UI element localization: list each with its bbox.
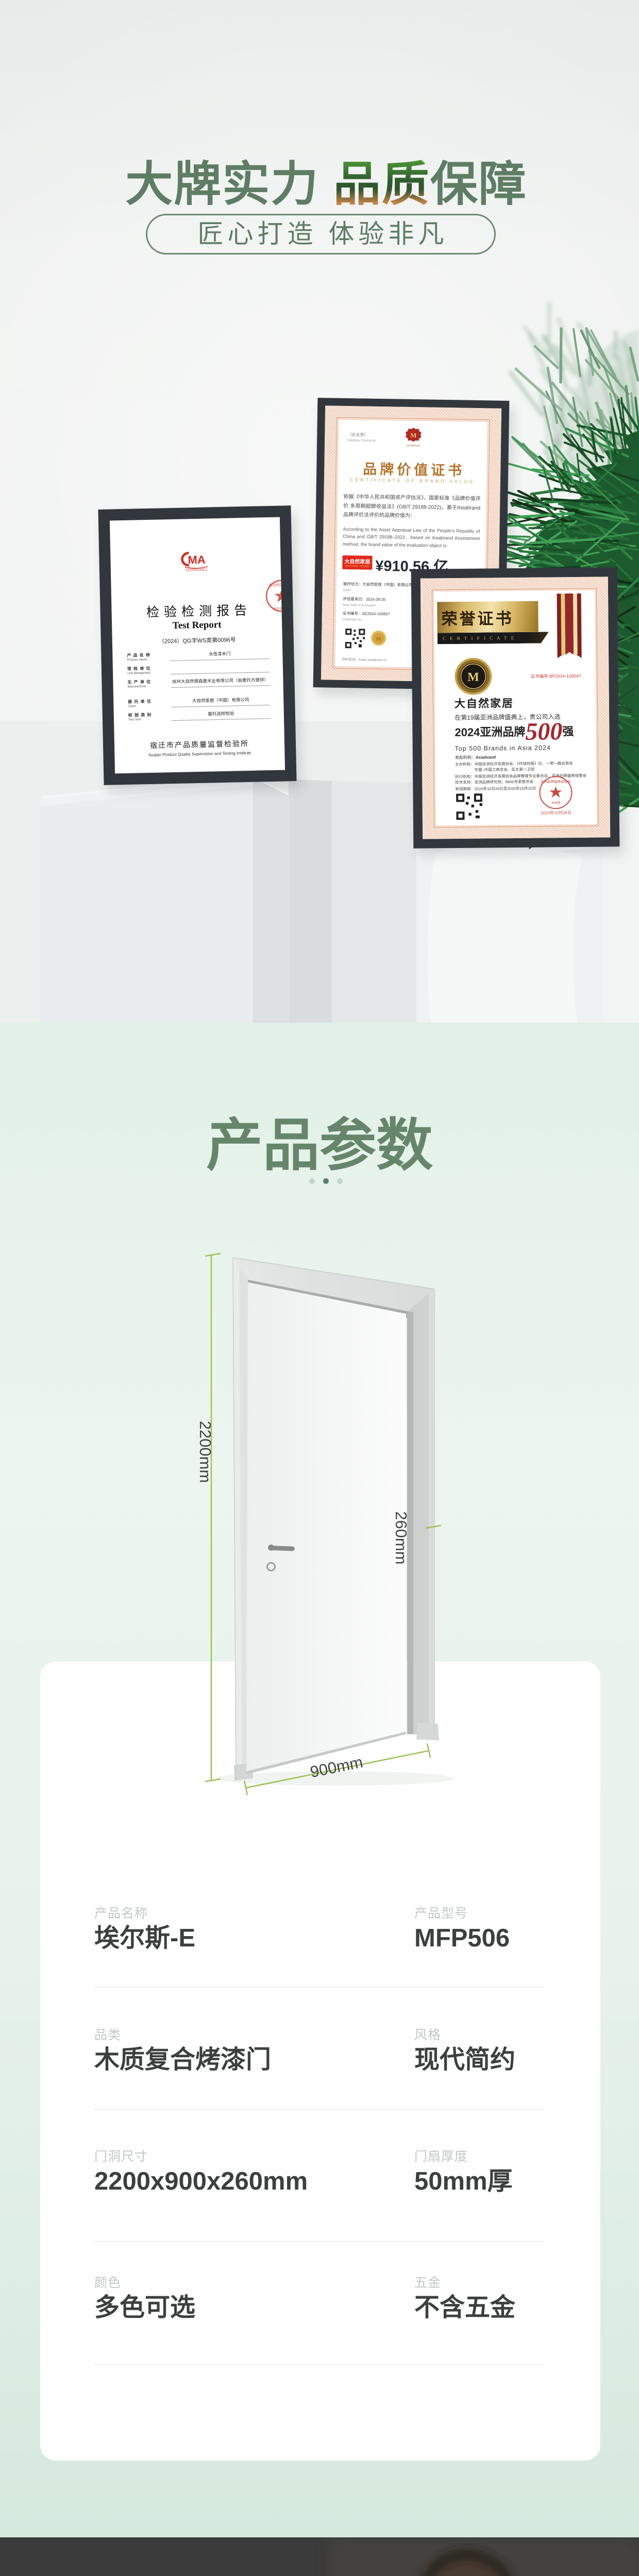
svg-text:宿迁市质检所: 宿迁市质检所 — [273, 606, 285, 611]
svg-text:260mm: 260mm — [392, 1511, 410, 1564]
svg-text:2200mm: 2200mm — [196, 1421, 214, 1483]
svg-text:专用章: 专用章 — [551, 801, 561, 805]
svg-text:MA: MA — [188, 553, 206, 567]
svg-text:M: M — [467, 671, 479, 684]
svg-text:M: M — [410, 432, 416, 439]
svg-text:检验检测专用章: 检验检测专用章 — [269, 582, 285, 587]
svg-text:M: M — [376, 636, 381, 642]
svg-text:2024年10月26日: 2024年10月26日 — [541, 810, 571, 816]
svg-text:211020113311: 211020113311 — [186, 568, 207, 572]
svg-text:ASIABRAND: ASIABRAND — [407, 444, 421, 447]
svg-text:亚洲品牌盛典组委会: 亚洲品牌盛典组委会 — [541, 779, 571, 784]
